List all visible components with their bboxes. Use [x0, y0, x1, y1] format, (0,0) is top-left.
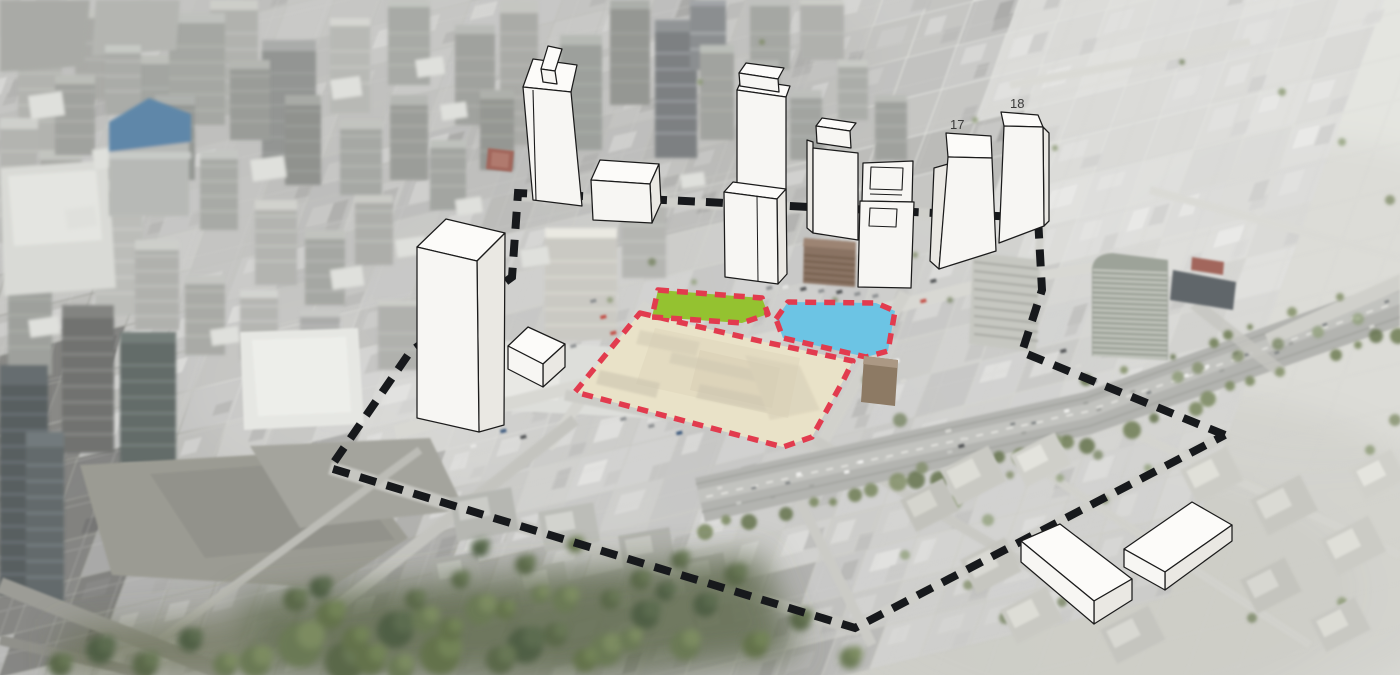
svg-text:17: 17 [950, 117, 964, 132]
svg-text:18: 18 [1010, 96, 1024, 111]
